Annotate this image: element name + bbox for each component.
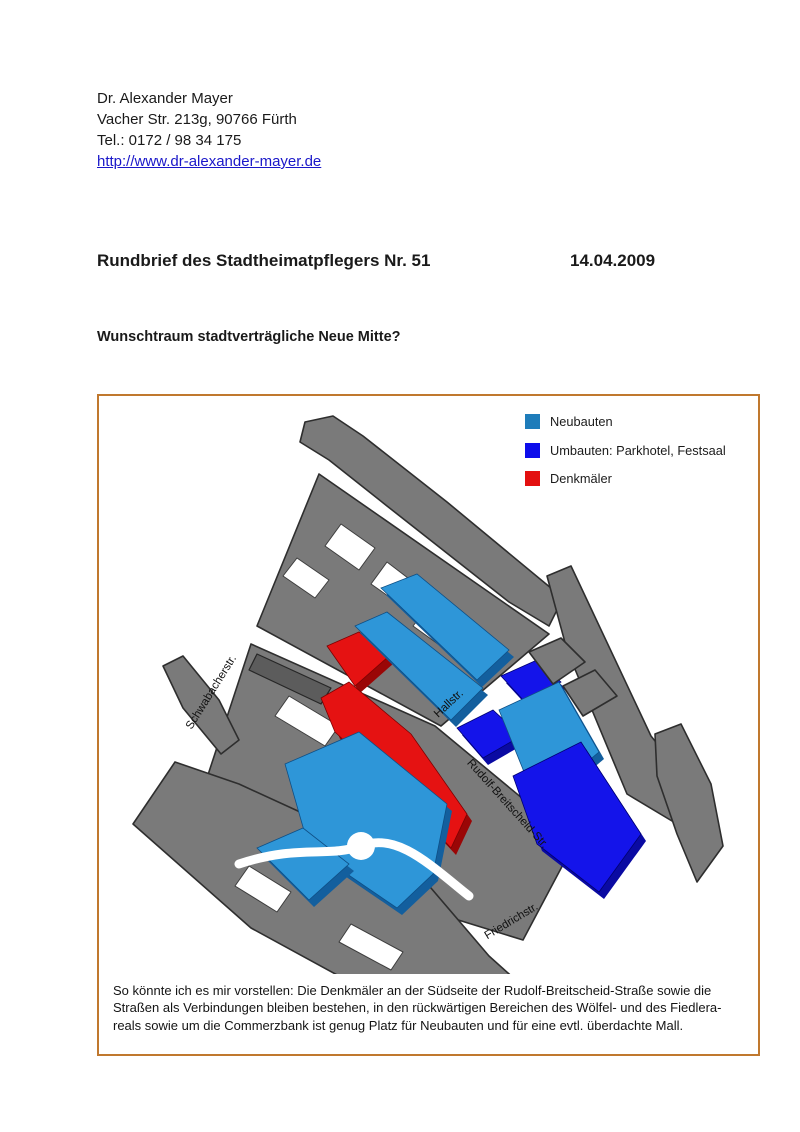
page-subtitle: Wunschtraum stadtverträgliche Neue Mitte…	[97, 329, 401, 345]
legend-label-neubauten: Neubauten	[550, 414, 613, 429]
sender-block: Dr. Alexander Mayer Vacher Str. 213g, 90…	[97, 88, 321, 172]
legend-label-umbauten: Umbauten: Parkhotel, Festsaal	[550, 443, 726, 458]
figure-frame: Schwabacherstr. Hallstr. Rudolf-Breitsch…	[97, 394, 760, 1056]
city-model-map: Schwabacherstr. Hallstr. Rudolf-Breitsch…	[99, 396, 758, 974]
legend-swatch-umbauten	[525, 443, 540, 458]
figure-caption: So könnte ich es mir vorstellen: Die Den…	[113, 982, 741, 1034]
title-row: Rundbrief des Stadtheimatpflegers Nr. 51…	[97, 251, 760, 271]
roundabout	[347, 832, 375, 860]
page-date: 14.04.2009	[570, 251, 655, 271]
sender-phone: Tel.: 0172 / 98 34 175	[97, 130, 321, 151]
caption-line-1: So könnte ich es mir vorstellen: Die Den…	[113, 982, 741, 999]
legend-swatch-denkmaeler	[525, 471, 540, 486]
caption-line-3: reals sowie um die Commerzbank ist genug…	[113, 1017, 741, 1034]
map-legend: Neubauten Umbauten: Parkhotel, Festsaal …	[525, 414, 726, 486]
page-title: Rundbrief des Stadtheimatpflegers Nr. 51	[97, 251, 430, 270]
sender-name: Dr. Alexander Mayer	[97, 88, 321, 109]
legend-swatch-neubauten	[525, 414, 540, 429]
legend-label-denkmaeler: Denkmäler	[550, 471, 613, 486]
sender-address: Vacher Str. 213g, 90766 Fürth	[97, 109, 321, 130]
caption-line-2: Straßen als Verbindungen bleiben bestehe…	[113, 999, 741, 1016]
sender-website-link[interactable]: http://www.dr-alexander-mayer.de	[97, 153, 321, 170]
